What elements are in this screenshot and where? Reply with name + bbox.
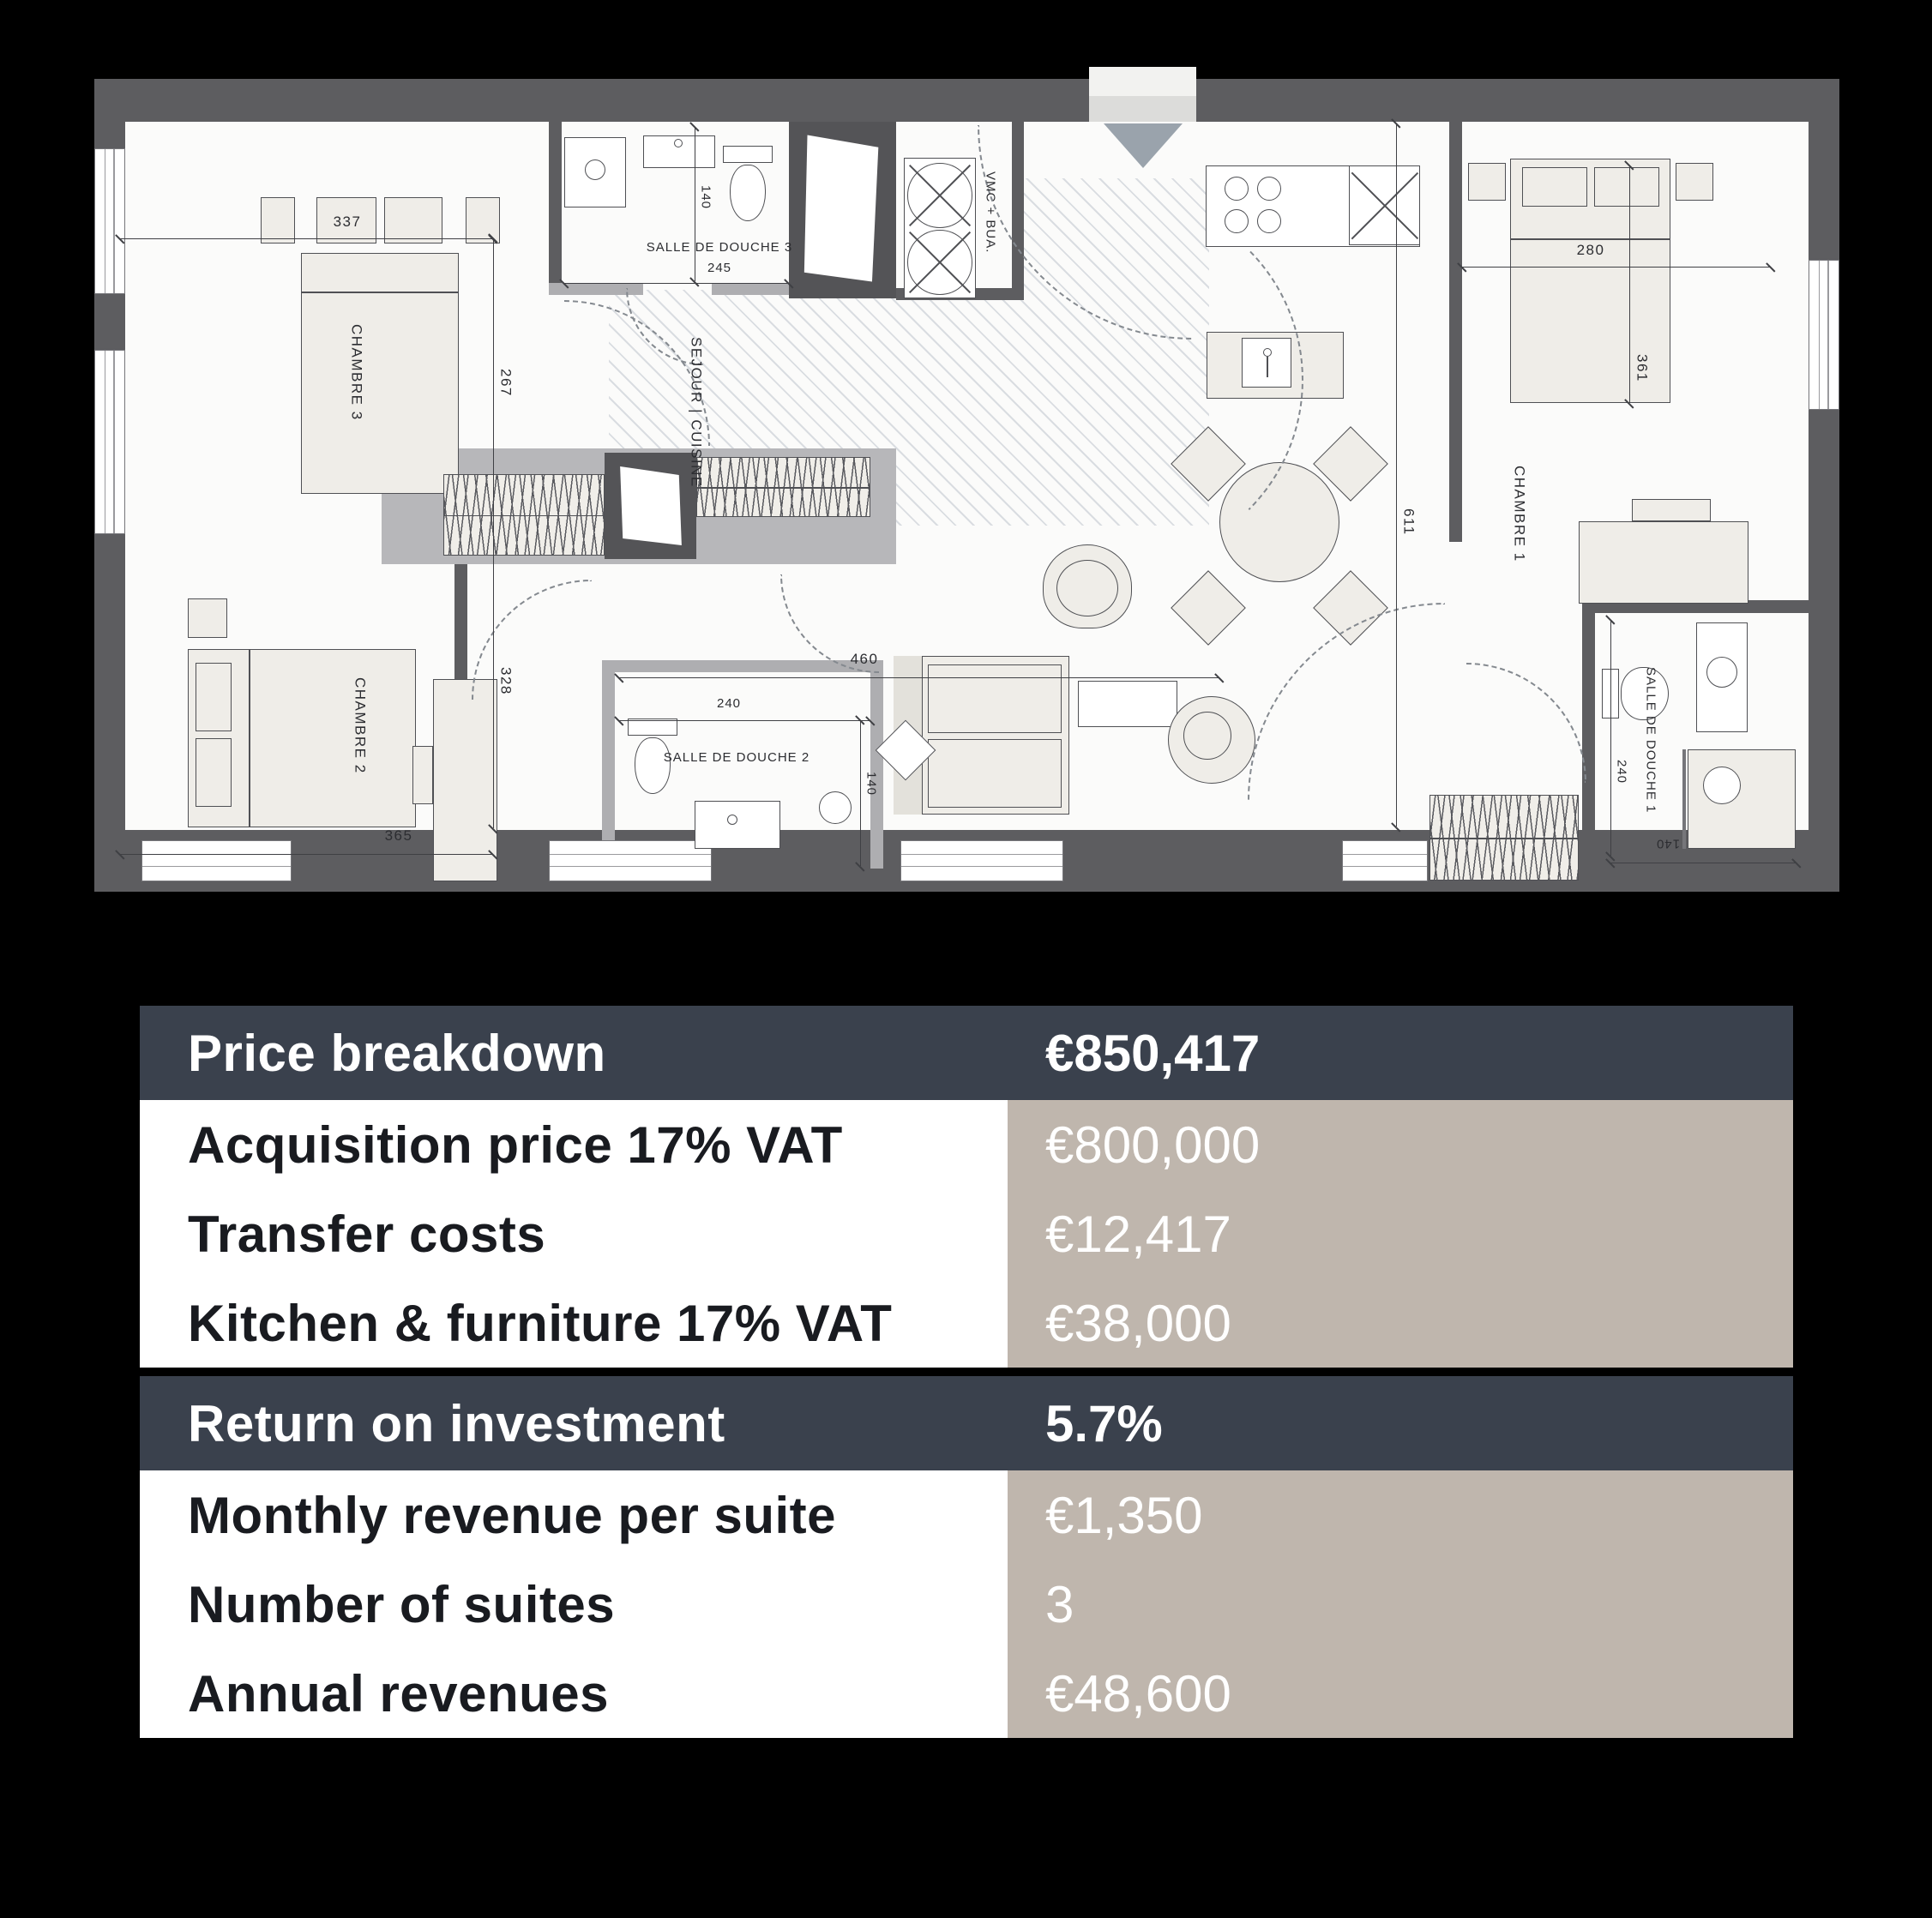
- table-header-row: Price breakdown €850,417: [140, 1006, 1793, 1100]
- bathroom-vanity: [695, 801, 780, 849]
- fridge: [1349, 165, 1420, 245]
- table-row: Number of suites 3: [140, 1560, 1793, 1649]
- bed-pillow: [1594, 167, 1659, 207]
- dim-label: 140: [864, 772, 878, 796]
- dim-label: 267: [497, 369, 514, 397]
- page: 337 267 328 365 245 140 280 361 611 460 …: [0, 0, 1932, 1918]
- row-value: 3: [1008, 1560, 1793, 1649]
- header-label: Price breakdown: [140, 1006, 1008, 1100]
- window: [141, 840, 292, 881]
- cooktop-burner: [1225, 209, 1249, 233]
- row-value: €48,600: [1008, 1649, 1793, 1738]
- row-label: Transfer costs: [140, 1189, 1008, 1278]
- dim-line: [564, 283, 789, 284]
- window: [94, 350, 125, 534]
- wall: [870, 660, 883, 869]
- bed-chambre-3: [301, 253, 459, 494]
- cooktop-burner: [1257, 177, 1281, 201]
- dim-line: [493, 238, 494, 828]
- header-label: Return on investment: [140, 1376, 1008, 1470]
- entry-threshold: [1089, 96, 1196, 122]
- dim-line: [860, 720, 861, 866]
- wall: [1449, 122, 1462, 542]
- dim-label: 361: [1634, 354, 1650, 382]
- armchair-seat: [1056, 560, 1118, 616]
- row-value: €800,000: [1008, 1100, 1793, 1189]
- window: [1809, 260, 1839, 410]
- room-label-chambre-2: CHAMBRE 2: [352, 677, 368, 774]
- dim-label: 280: [1556, 243, 1625, 259]
- wardrobe: [443, 474, 605, 556]
- desk-shelf: [1632, 499, 1711, 521]
- row-label: Monthly revenue per suite: [140, 1470, 1008, 1560]
- dim-line: [1396, 123, 1397, 827]
- row-value: €1,350: [1008, 1470, 1793, 1560]
- floor-plan: 337 267 328 365 245 140 280 361 611 460 …: [94, 67, 1839, 892]
- dim-label: 460: [830, 652, 899, 668]
- shower: [1688, 749, 1796, 849]
- sofa-cushion: [928, 739, 1062, 808]
- window: [1342, 840, 1428, 881]
- entry-recess: [1089, 67, 1196, 96]
- wardrobe: [1429, 795, 1579, 881]
- washer-drum: [907, 163, 972, 228]
- desk: [433, 679, 497, 881]
- dim-line: [619, 677, 1219, 678]
- window: [94, 148, 125, 294]
- door-arc: [1248, 603, 1445, 800]
- shower-glass: [1682, 749, 1686, 849]
- outside-mask: [94, 67, 1839, 79]
- dim-label: 328: [497, 667, 514, 695]
- header-value: 5.7%: [1008, 1376, 1793, 1470]
- door-arc: [1466, 663, 1586, 783]
- dim-label: 611: [1400, 508, 1417, 536]
- toilet: [730, 165, 766, 221]
- dim-line: [1610, 863, 1797, 863]
- dim-label: 245: [595, 262, 844, 276]
- sofa-cushion: [928, 664, 1062, 733]
- nightstand: [261, 197, 295, 244]
- dim-label: 240: [1614, 760, 1628, 784]
- wall: [1196, 79, 1839, 122]
- faucet-icon: [727, 815, 737, 825]
- dim-line: [1629, 165, 1630, 403]
- pricing-table: Price breakdown €850,417 Acquisition pri…: [140, 1006, 1793, 1738]
- shower-drain: [585, 159, 605, 180]
- room-label-salle-de-douche-1: SALLE DE DOUCHE 1: [1643, 667, 1658, 813]
- bed-pillow: [196, 738, 232, 807]
- bed-pillow: [196, 663, 232, 731]
- wall: [1582, 600, 1595, 830]
- cooktop-burner: [1225, 177, 1249, 201]
- dim-line: [1462, 267, 1771, 268]
- door-arc: [472, 580, 592, 700]
- table-header-row: Return on investment 5.7%: [140, 1376, 1793, 1470]
- bed-blanket-line: [301, 292, 459, 293]
- room-label-salle-de-douche-2: SALLE DE DOUCHE 2: [612, 751, 861, 766]
- nightstand: [1676, 163, 1713, 201]
- dim-label: 337: [313, 214, 382, 231]
- dim-label: 140: [1638, 836, 1698, 851]
- toilet: [635, 737, 671, 794]
- pouf-center: [1183, 712, 1231, 760]
- wardrobe: [696, 457, 870, 517]
- bed-blanket-line: [249, 649, 250, 827]
- dim-label: 365: [364, 828, 433, 845]
- dim-label: 140: [698, 185, 713, 209]
- nightstand: [1468, 163, 1506, 201]
- dim-line: [120, 854, 493, 855]
- row-value: €38,000: [1008, 1278, 1793, 1368]
- row-label: Kitchen & furniture 17% VAT: [140, 1278, 1008, 1368]
- shower-drain: [819, 791, 852, 824]
- nightstand: [188, 598, 227, 638]
- table-row: Annual revenues €48,600: [140, 1649, 1793, 1738]
- table-row: Kitchen & furniture 17% VAT €38,000: [140, 1278, 1793, 1368]
- desk-chair: [412, 746, 433, 804]
- row-label: Annual revenues: [140, 1649, 1008, 1738]
- door-leaf: [617, 463, 684, 549]
- header-value: €850,417: [1008, 1006, 1793, 1100]
- dim-line: [695, 127, 695, 281]
- row-label: Number of suites: [140, 1560, 1008, 1649]
- wall: [712, 283, 789, 295]
- table-section-return-on-investment: Return on investment 5.7% Monthly revenu…: [140, 1376, 1793, 1738]
- nightstand: [466, 197, 500, 244]
- wall: [1809, 79, 1839, 873]
- window: [900, 840, 1063, 881]
- table-row: Transfer costs €12,417: [140, 1189, 1793, 1278]
- dining-chair: [1171, 570, 1246, 646]
- table-row: Acquisition price 17% VAT €800,000: [140, 1100, 1793, 1189]
- desk: [1579, 521, 1748, 604]
- bed-pillow: [1522, 167, 1587, 207]
- room-label-chambre-3: CHAMBRE 3: [348, 324, 364, 421]
- cooktop-burner: [1257, 209, 1281, 233]
- table-section-price-breakdown: Price breakdown €850,417 Acquisition pri…: [140, 1006, 1793, 1368]
- room-label-salle-de-douche-3: SALLE DE DOUCHE 3: [595, 241, 844, 256]
- room-label-vmc-bua: VMC + BUA.: [983, 171, 997, 253]
- bed-pillow: [384, 197, 442, 244]
- coffee-table: [1078, 681, 1177, 727]
- dim-label: 240: [695, 697, 763, 712]
- window: [549, 840, 712, 881]
- dim-line: [120, 238, 493, 239]
- dim-line: [1610, 620, 1611, 856]
- table-row: Monthly revenue per suite €1,350: [140, 1470, 1793, 1560]
- room-label-chambre-1: CHAMBRE 1: [1511, 466, 1527, 562]
- faucet-icon: [674, 139, 683, 147]
- row-value: €12,417: [1008, 1189, 1793, 1278]
- row-label: Acquisition price 17% VAT: [140, 1100, 1008, 1189]
- shower-drain: [1703, 767, 1741, 804]
- toilet-tank: [723, 146, 773, 163]
- room-label-sejour-cuisine: SEJOUR | CUISINE: [688, 337, 704, 488]
- wall: [94, 79, 1089, 122]
- dim-line: [619, 720, 870, 721]
- sink-basin: [1706, 657, 1737, 688]
- wall: [549, 122, 562, 293]
- toilet-tank: [628, 718, 677, 736]
- bed-blanket-line: [1510, 238, 1670, 240]
